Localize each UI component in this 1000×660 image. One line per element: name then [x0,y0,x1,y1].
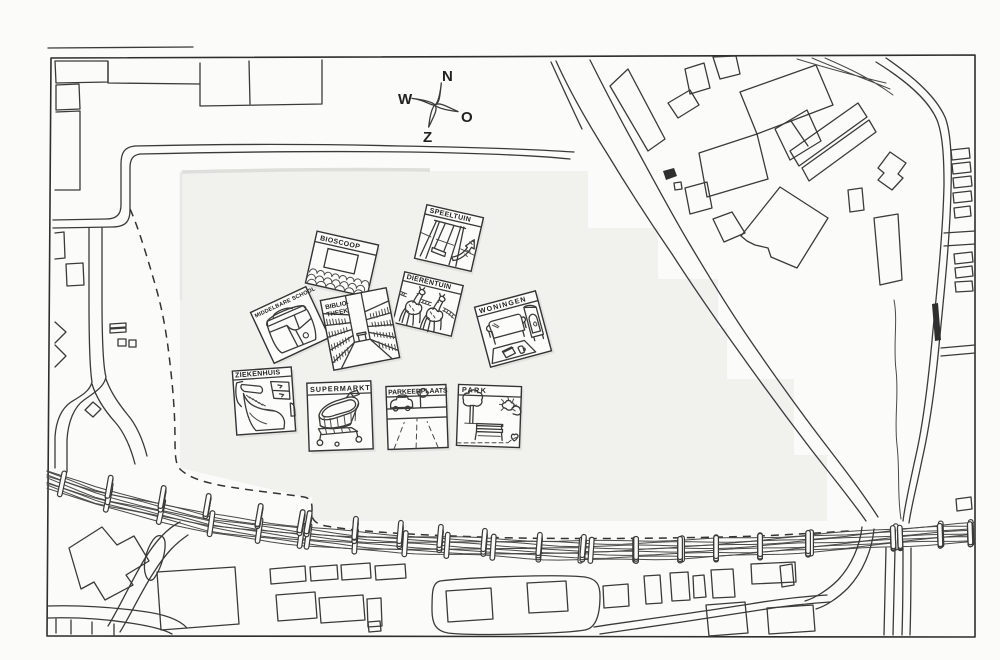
svg-text:N: N [442,68,453,85]
svg-text:O: O [461,109,473,126]
svg-text:Z: Z [423,129,432,146]
svg-text:W: W [398,91,413,108]
